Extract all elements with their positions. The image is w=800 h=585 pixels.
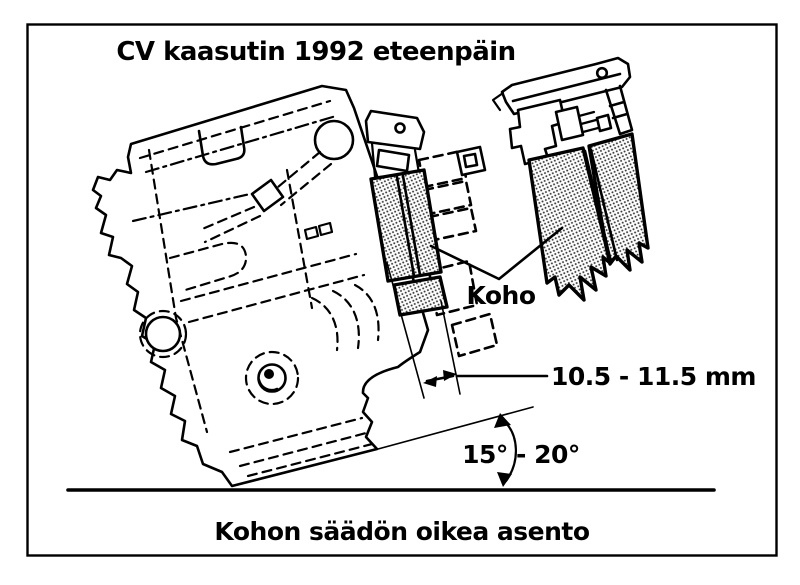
figure-title: CV kaasutin 1992 eteenpäin [116, 37, 515, 67]
figure-caption: Kohon säädön oikea asento [214, 517, 589, 546]
needle-valve [556, 107, 583, 140]
bracket-hole [396, 124, 405, 133]
angle-label: 15° - 20° [462, 440, 580, 469]
float-tip [394, 277, 447, 315]
manual-page: CV kaasutin 1992 eteenpäin [0, 0, 800, 585]
float-height-label: 10.5 - 11.5 mm [551, 362, 756, 391]
float-label: Koho [466, 281, 535, 310]
hinge-bracket-hole [597, 68, 607, 78]
float-adjustment-diagram: CV kaasutin 1992 eteenpäin [0, 0, 800, 585]
